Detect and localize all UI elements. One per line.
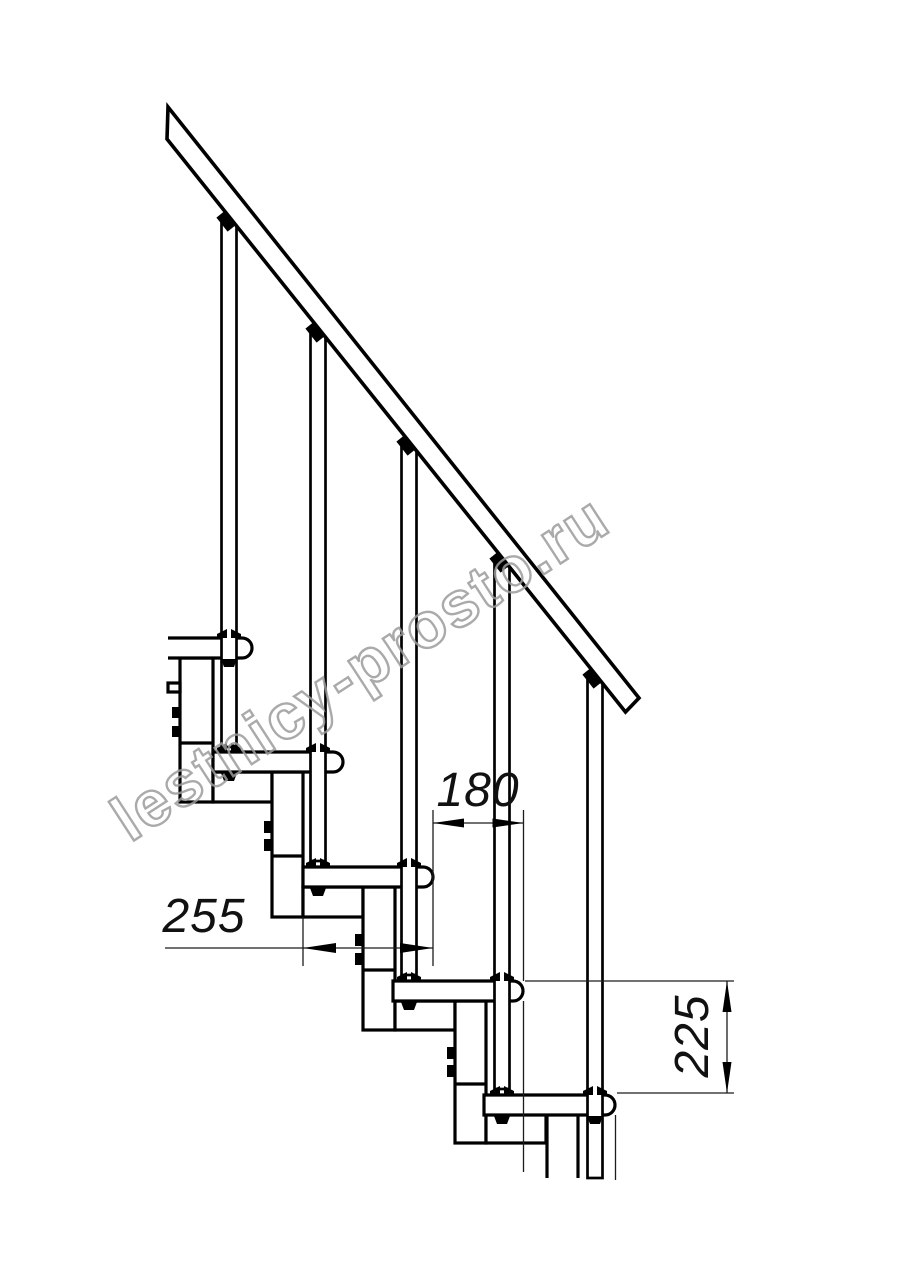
tread-1	[168, 638, 252, 658]
staircase-drawing-canvas: 180 255 225 lestnicy-prosto.ru	[0, 0, 914, 1280]
module-column-5	[547, 1114, 578, 1178]
baluster-1	[222, 219, 237, 747]
watermark: lestnicy-prosto.ru	[99, 480, 622, 854]
baluster-3	[402, 443, 417, 975]
dimension-tread-depth-label: 255	[161, 890, 245, 943]
dimension-rise: 225	[525, 981, 734, 1093]
dimension-rise-label: 225	[666, 994, 719, 1078]
staircase-drawing: 180 255 225 lestnicy-prosto.ru	[0, 0, 914, 1280]
dimension-going-label: 180	[436, 764, 519, 817]
baluster-2	[311, 330, 326, 861]
baluster-5	[588, 676, 603, 1178]
